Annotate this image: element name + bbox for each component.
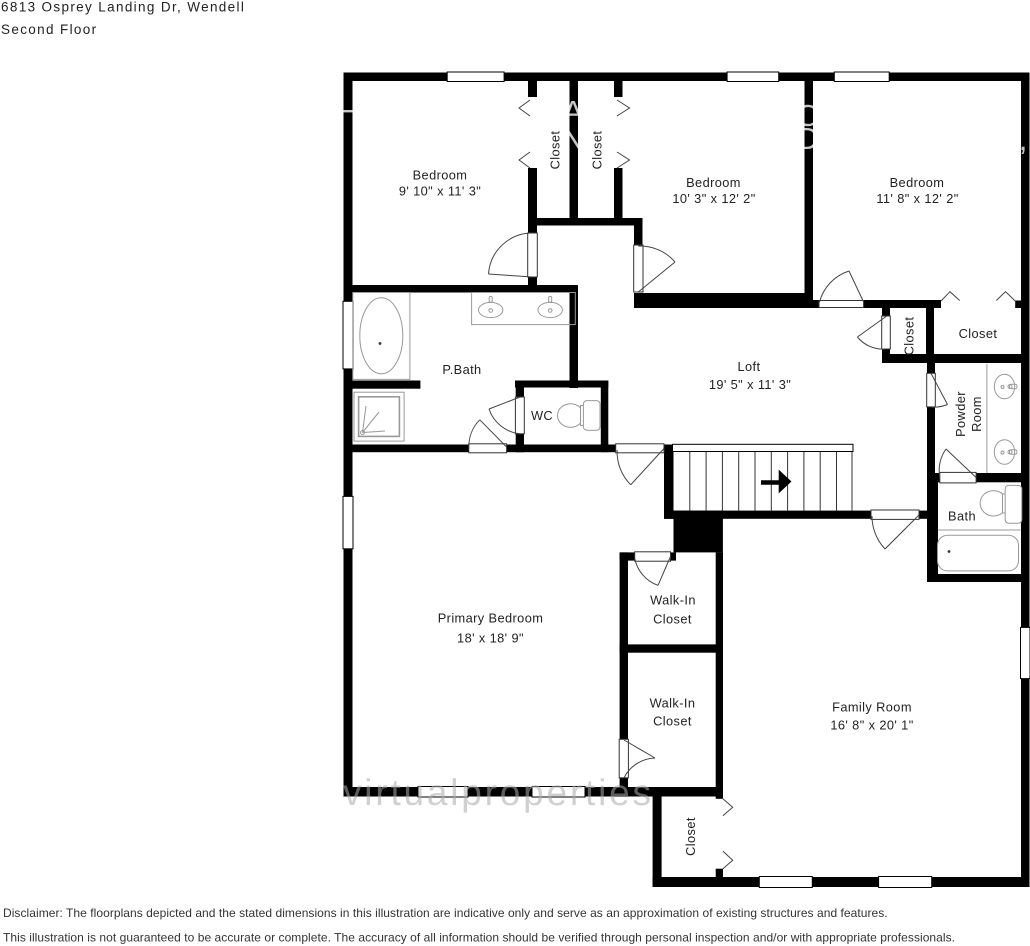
svg-text:WC: WC [531,408,553,423]
svg-text:18' x 18' 9": 18' x 18' 9" [457,631,524,646]
svg-text:Bath: Bath [948,509,976,524]
svg-text:D: D [797,121,819,156]
svg-text:Bedroom: Bedroom [413,168,468,183]
svg-text:19' 5" x 11' 3": 19' 5" x 11' 3" [709,377,791,392]
svg-text:virtualproperties: virtualproperties [343,772,654,813]
svg-text:Room: Room [969,396,984,432]
svg-text:P.Bath: P.Bath [442,362,481,377]
svg-text:Second Floor: Second Floor [1,22,98,37]
svg-text:Closet: Closet [548,131,563,170]
svg-text:Closet: Closet [590,131,605,170]
svg-text:Closet: Closet [653,714,692,729]
svg-text:Family Room: Family Room [832,700,912,715]
svg-text:Bedroom: Bedroom [686,175,741,190]
svg-text:6813 Osprey Landing Dr, Wendel: 6813 Osprey Landing Dr, Wendell [1,0,245,15]
svg-text:Primary Bedroom: Primary Bedroom [438,611,544,626]
svg-text:Closet: Closet [959,326,998,341]
svg-text:Closet: Closet [683,817,698,856]
svg-text:Bedroom: Bedroom [890,175,945,190]
svg-text:This illustration is not guara: This illustration is not guaranteed to b… [3,931,955,945]
svg-text:Powder: Powder [953,391,968,437]
svg-text:Walk-In: Walk-In [650,696,696,711]
svg-text:11' 8" x 12' 2": 11' 8" x 12' 2" [876,191,958,206]
svg-text:H: H [336,94,358,129]
svg-text:Closet: Closet [902,317,917,356]
svg-text:N: N [562,121,584,156]
svg-text:Walk-In: Walk-In [650,593,696,608]
svg-text:9' 10" x 11' 3": 9' 10" x 11' 3" [399,184,481,199]
svg-text:Disclaimer: The floorplans dep: Disclaimer: The floorplans depicted and … [3,906,888,920]
svg-text:Loft: Loft [738,359,761,374]
svg-text:,: , [1019,122,1028,157]
svg-text:16' 8" x 20' 1": 16' 8" x 20' 1" [830,718,913,733]
svg-text:Closet: Closet [653,612,692,627]
svg-text:10' 3" x 12' 2": 10' 3" x 12' 2" [672,191,755,206]
